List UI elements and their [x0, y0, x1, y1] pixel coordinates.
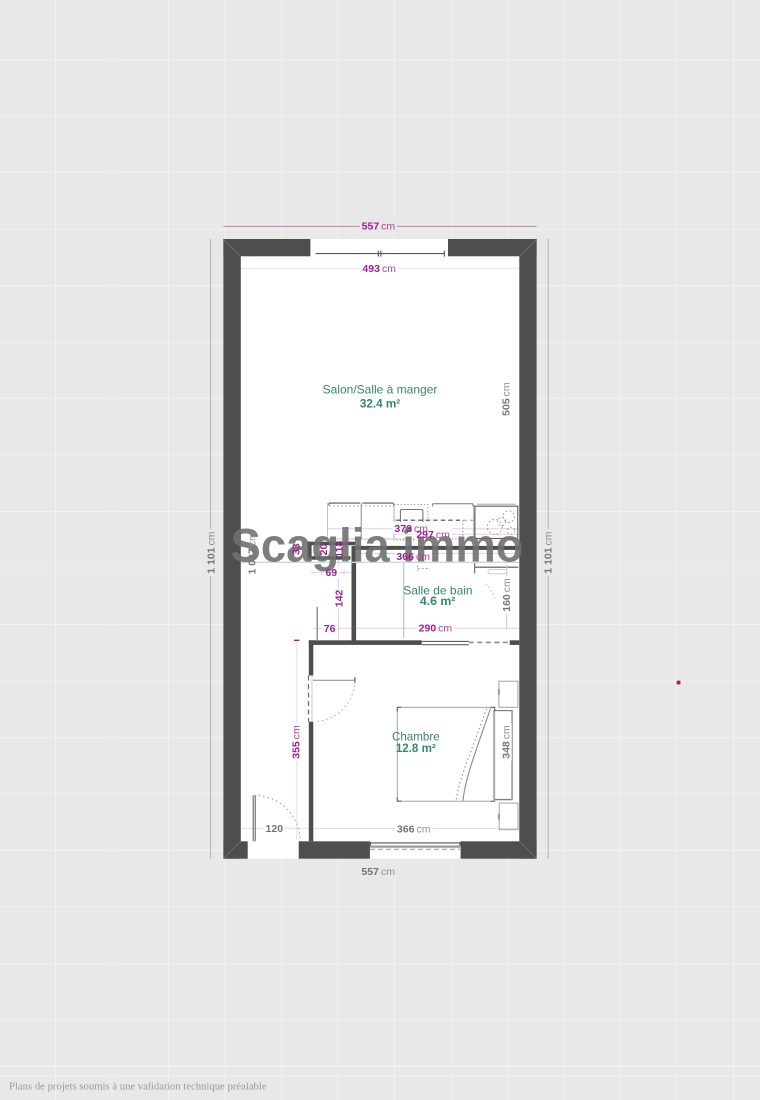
svg-text:1 101cm: 1 101cm	[543, 531, 555, 574]
svg-text:290cm: 290cm	[419, 623, 453, 635]
svg-text:4.6 m²: 4.6 m²	[420, 594, 456, 608]
svg-text:557cm: 557cm	[362, 221, 396, 233]
svg-text:120: 120	[266, 823, 284, 835]
svg-text:Plans de projets soumis à une: Plans de projets soumis à une validation…	[9, 1081, 267, 1093]
svg-text:493cm: 493cm	[362, 263, 396, 275]
svg-text:1 037cm: 1 037cm	[247, 532, 259, 575]
svg-text:366cm: 366cm	[396, 551, 430, 563]
svg-text:Scaglia immo: Scaglia immo	[231, 519, 524, 572]
svg-text:1 101cm: 1 101cm	[205, 531, 217, 574]
svg-text:366cm: 366cm	[397, 823, 431, 835]
svg-text:32.4 m²: 32.4 m²	[360, 397, 400, 410]
svg-text:557cm: 557cm	[361, 866, 395, 878]
svg-text:355cm: 355cm	[290, 725, 302, 759]
svg-text:118: 118	[334, 541, 346, 558]
svg-text:76: 76	[324, 623, 336, 635]
svg-text:297cm: 297cm	[416, 529, 450, 541]
svg-text:160cm: 160cm	[501, 578, 513, 612]
svg-text:12.8 m²: 12.8 m²	[396, 742, 436, 755]
svg-text:348cm: 348cm	[501, 725, 513, 759]
svg-text:33: 33	[291, 543, 303, 555]
svg-text:505cm: 505cm	[501, 382, 513, 416]
svg-text:20: 20	[318, 544, 330, 556]
svg-text:69: 69	[325, 567, 337, 579]
svg-text:Salon/Salle à manger: Salon/Salle à manger	[323, 383, 438, 397]
svg-text:142: 142	[333, 590, 345, 608]
